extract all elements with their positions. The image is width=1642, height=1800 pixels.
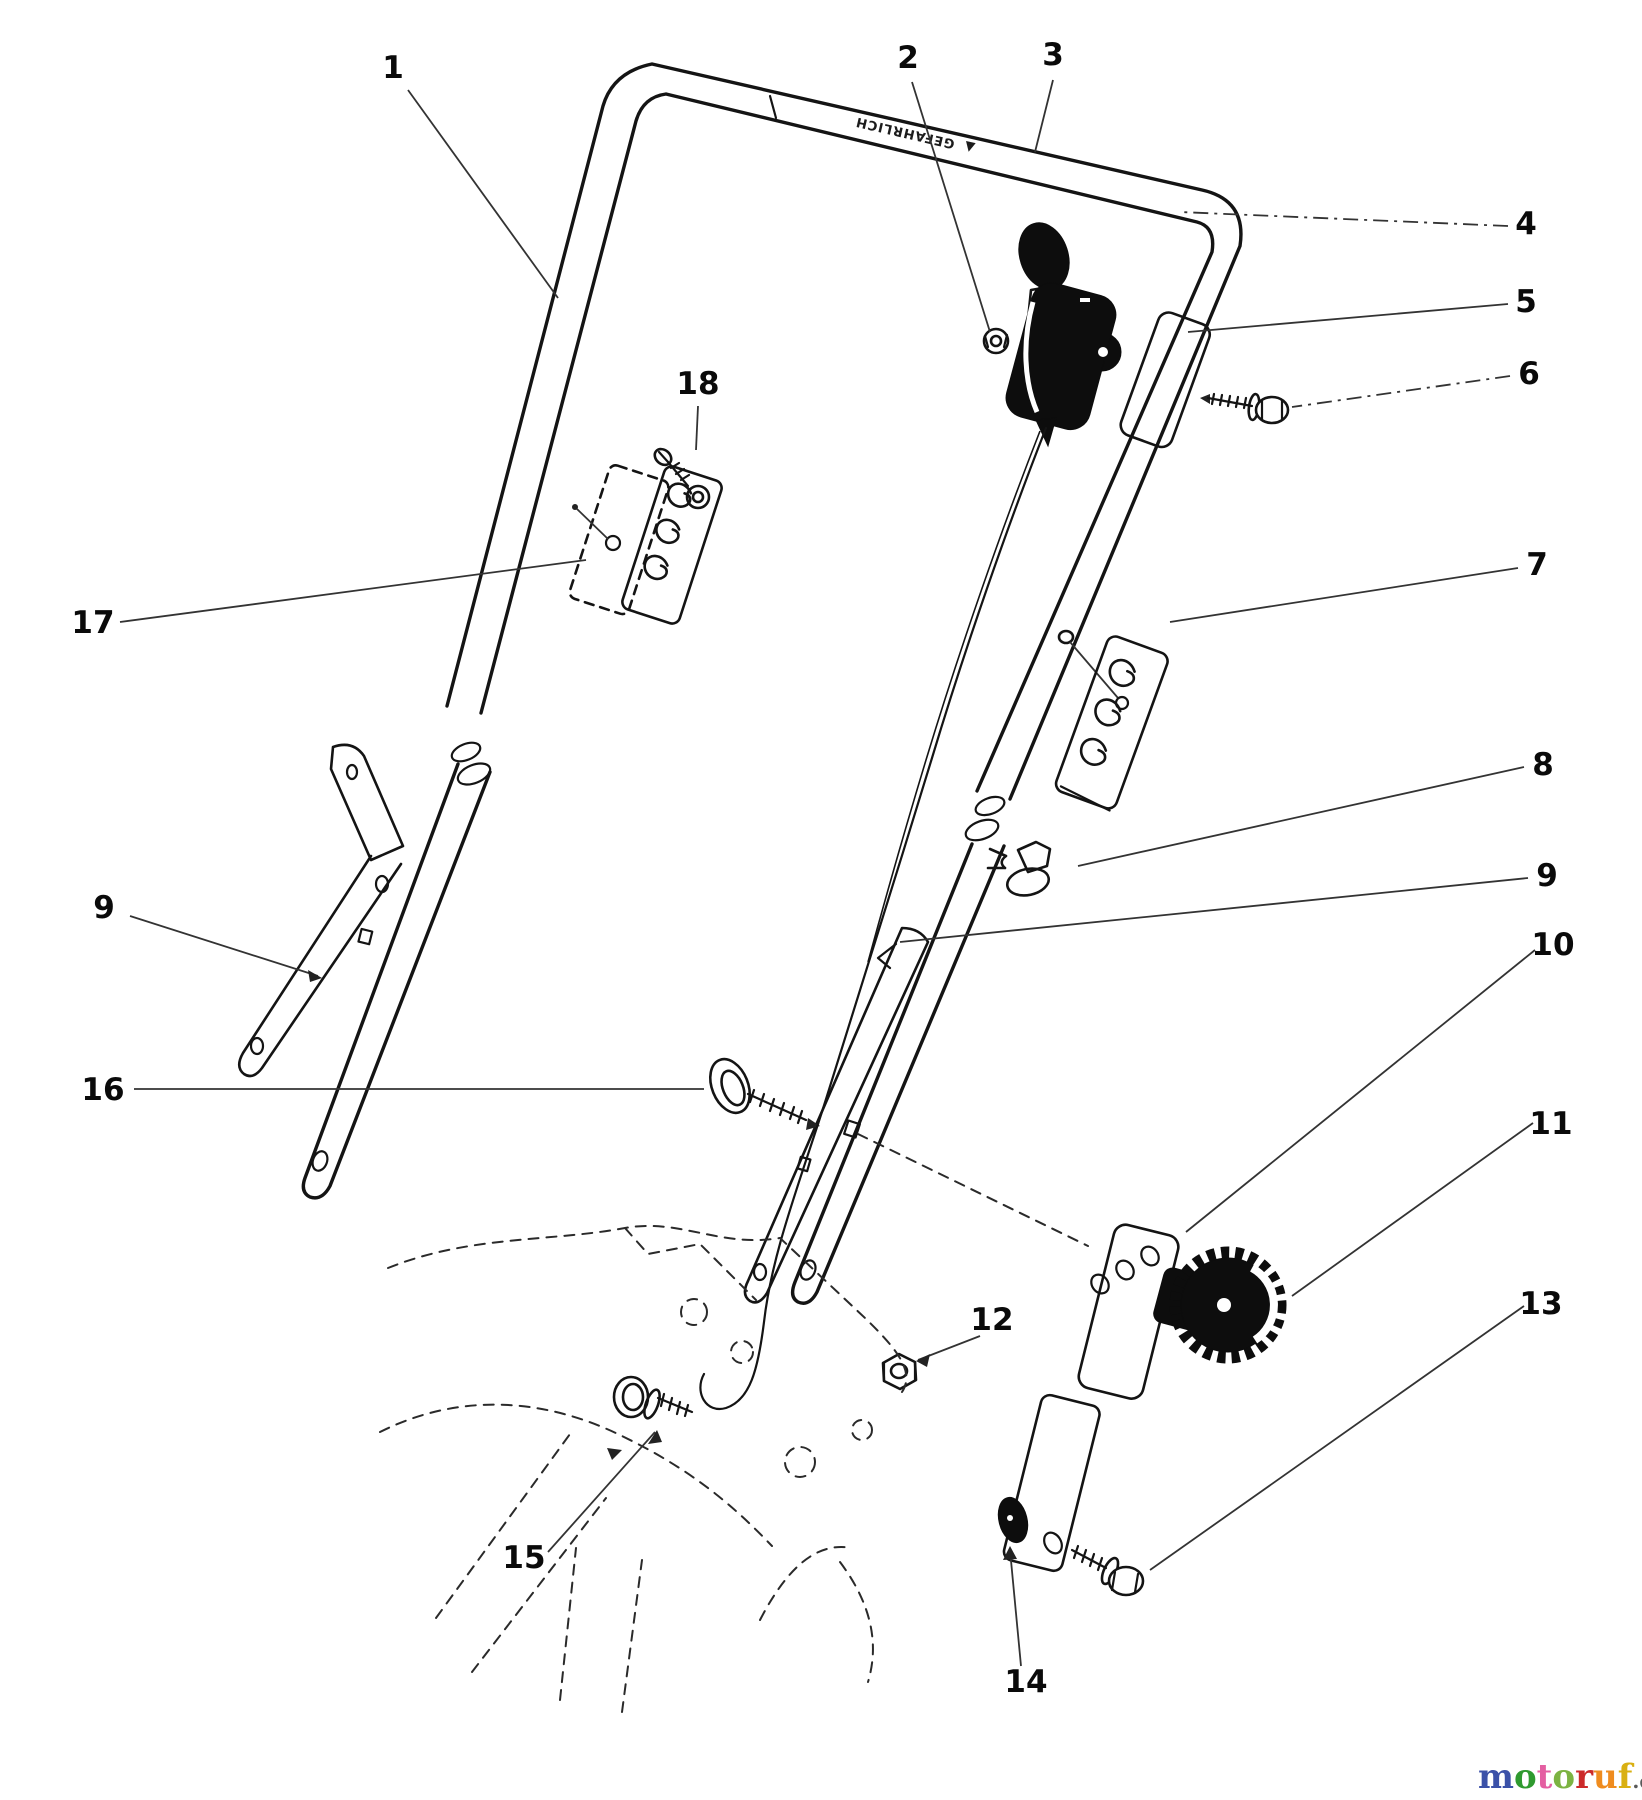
logo-letter-o2: o bbox=[1552, 1757, 1575, 1797]
housing-bolt-left bbox=[607, 1377, 692, 1460]
logo-letter-o1: o bbox=[1514, 1757, 1537, 1797]
callout-14: 14 bbox=[1004, 1664, 1047, 1700]
callout-9-right-leader bbox=[900, 878, 1528, 942]
lower-right-handle-tube bbox=[793, 844, 1004, 1303]
watermark-link[interactable]: motoruf.de bbox=[1478, 1757, 1642, 1797]
callout-leaders bbox=[120, 80, 1535, 1666]
bracket-bolt-part13 bbox=[1072, 1546, 1143, 1595]
callout-4: 4 bbox=[1515, 206, 1537, 242]
cable-hook-plate-part7 bbox=[1053, 631, 1170, 812]
callout-11-leader bbox=[1292, 1123, 1533, 1296]
logo-letter-m: m bbox=[1478, 1757, 1514, 1797]
callout-11: 11 bbox=[1529, 1106, 1572, 1142]
callout-7: 7 bbox=[1526, 547, 1548, 583]
assembly-alignment-line bbox=[858, 1134, 1088, 1246]
callout-10-leader bbox=[1186, 950, 1535, 1232]
callout-4-leader bbox=[1180, 212, 1508, 226]
callout-10: 10 bbox=[1531, 927, 1574, 963]
callout-16: 16 bbox=[81, 1072, 124, 1108]
mower-housing-hidden-outline bbox=[380, 1226, 906, 1712]
handle-bolt-part6 bbox=[1200, 393, 1288, 423]
callout-7-leader bbox=[1170, 568, 1518, 622]
callout-9-right: 9 bbox=[1536, 858, 1558, 894]
logo-letter-t: t bbox=[1537, 1757, 1553, 1797]
throttle-control bbox=[1002, 216, 1121, 446]
throttle-cable bbox=[700, 428, 1046, 1409]
parts-diagram-page: ▲ GEFAHRLICH bbox=[0, 0, 1642, 1800]
callout-labels: 1 2 3 4 5 6 7 8 9 10 11 12 13 14 15 16 1… bbox=[71, 37, 1574, 1700]
logo-letter-r: r bbox=[1575, 1757, 1594, 1797]
callout-6-leader bbox=[1292, 376, 1510, 407]
throttle-mount-nut-part2 bbox=[984, 329, 1008, 353]
handle-brace-left-part9 bbox=[239, 745, 403, 1076]
warning-text: GEFAHRLICH bbox=[854, 113, 956, 150]
callout-15: 15 bbox=[502, 1540, 545, 1576]
lower-height-bracket bbox=[1002, 1393, 1101, 1572]
callout-1: 1 bbox=[382, 50, 404, 86]
callout-8: 8 bbox=[1532, 747, 1554, 783]
callout-5: 5 bbox=[1515, 284, 1537, 320]
callout-9-left: 9 bbox=[93, 890, 115, 926]
callout-13: 13 bbox=[1519, 1286, 1562, 1322]
callout-1-leader bbox=[408, 90, 558, 298]
callout-17: 17 bbox=[71, 605, 114, 641]
callout-9-left-leader bbox=[130, 916, 318, 976]
svg-text:motoruf.de: motoruf.de bbox=[1478, 1757, 1642, 1797]
right-tube-joint bbox=[963, 793, 1007, 844]
callout-3: 3 bbox=[1042, 37, 1064, 73]
warning-triangle-icon: ▲ bbox=[962, 138, 976, 155]
callout-14-leader bbox=[1010, 1550, 1021, 1666]
handle-assembly-exploded-diagram: ▲ GEFAHRLICH bbox=[0, 0, 1642, 1800]
callout-18: 18 bbox=[676, 366, 719, 402]
callout-8-leader bbox=[1078, 767, 1524, 866]
callout-5-leader bbox=[1188, 304, 1508, 332]
callout-15-leader bbox=[548, 1432, 655, 1552]
callout-12: 12 bbox=[970, 1302, 1013, 1338]
adjust-knob-part11 bbox=[1152, 1253, 1280, 1357]
logo-suffix: .de bbox=[1632, 1769, 1642, 1793]
guide-plate-screw-part18 bbox=[652, 446, 709, 508]
logo-letter-u: u bbox=[1593, 1757, 1618, 1797]
callout-17-leader bbox=[120, 560, 586, 622]
callout-18-leader bbox=[696, 406, 698, 450]
callout-3-leader bbox=[1035, 80, 1053, 152]
carriage-bolt-part16 bbox=[703, 1053, 820, 1130]
callout-2: 2 bbox=[897, 40, 919, 76]
callout-6: 6 bbox=[1518, 356, 1540, 392]
cable-guide-plate-part17 bbox=[568, 464, 724, 626]
cable-clip-part8 bbox=[988, 842, 1051, 899]
washer-part14 bbox=[994, 1494, 1032, 1545]
callout-2-leader bbox=[912, 82, 990, 332]
